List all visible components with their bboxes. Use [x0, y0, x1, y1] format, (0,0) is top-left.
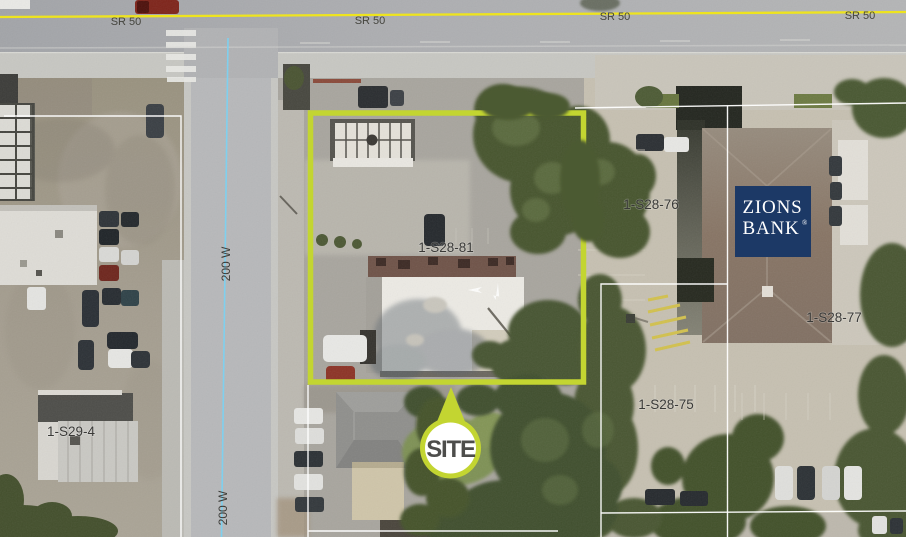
svg-text:1-S28-77: 1-S28-77: [806, 310, 862, 325]
svg-text:BANK: BANK: [742, 218, 799, 239]
svg-text:SR 50: SR 50: [355, 15, 386, 27]
svg-text:1-S28-75: 1-S28-75: [638, 397, 694, 412]
svg-text:ZIONS: ZIONS: [743, 197, 803, 218]
svg-text:®: ®: [802, 219, 808, 227]
svg-text:SITE: SITE: [426, 436, 476, 463]
svg-text:1-S28-81: 1-S28-81: [418, 240, 474, 255]
svg-text:SR 50: SR 50: [111, 16, 142, 28]
svg-text:1-S29-4: 1-S29-4: [47, 424, 96, 439]
svg-text:SR 50: SR 50: [600, 11, 631, 23]
svg-text:1-S28-76: 1-S28-76: [623, 197, 679, 212]
svg-text:200 W: 200 W: [216, 490, 230, 525]
svg-text:SR 50: SR 50: [845, 10, 876, 22]
svg-text:200 W: 200 W: [219, 246, 233, 281]
